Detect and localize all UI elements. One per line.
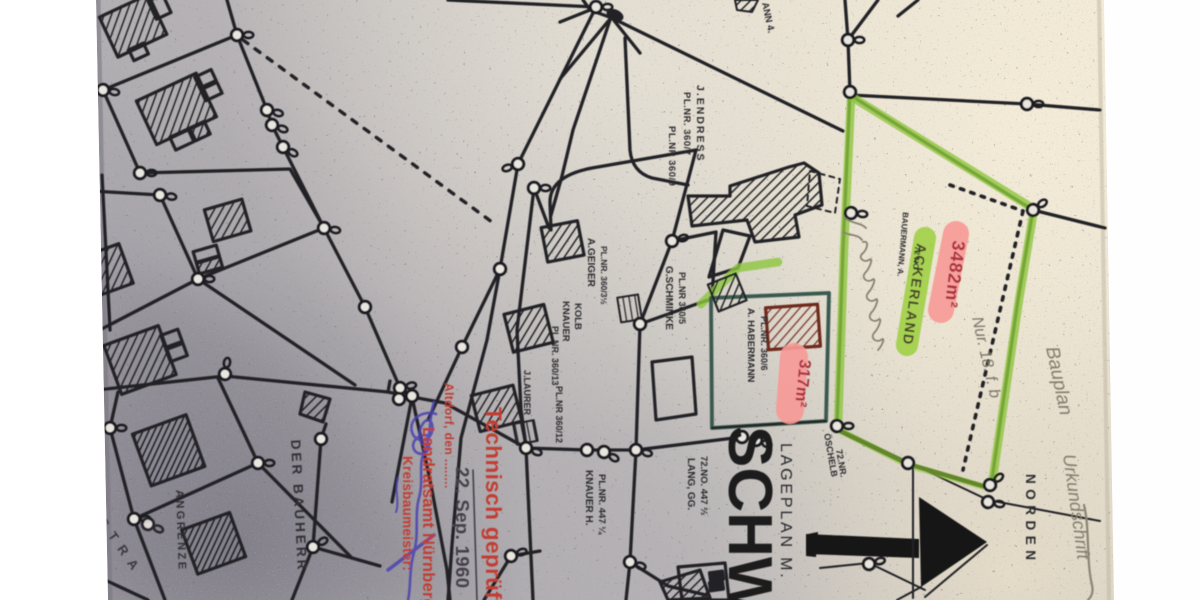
- svg-text:KNAUER H.: KNAUER H.: [583, 470, 594, 526]
- svg-text:Technisch geprüft: Technisch geprüft: [481, 407, 506, 600]
- svg-text:KOLB: KOLB: [572, 303, 583, 330]
- svg-text:PL.NR. 360/7: PL.NR. 360/7: [681, 92, 692, 156]
- svg-text:A.GEIGER: A.GEIGER: [585, 238, 596, 288]
- svg-text:PL.NR 360/12: PL.NR 360/12: [554, 386, 564, 443]
- svg-text:PL.NR. 360/6: PL.NR. 360/6: [759, 316, 769, 371]
- svg-text:LAGEPLAN M.: LAGEPLAN M.: [777, 443, 794, 581]
- svg-text:72.NO. 447 ⅔: 72.NO. 447 ⅔: [698, 456, 709, 515]
- svg-text:KNAUER: KNAUER: [560, 301, 571, 342]
- svg-text:PL.NR. 360/3½: PL.NR. 360/3½: [599, 246, 609, 305]
- svg-text:J.ENDRESS: J.ENDRESS: [694, 85, 706, 163]
- svg-text:PL.NR. 447 ¼: PL.NR. 447 ¼: [596, 474, 607, 535]
- svg-text:Kreisbaumeister:: Kreisbaumeister:: [400, 456, 415, 571]
- svg-text:A. HABERMANN: A. HABERMANN: [745, 308, 756, 383]
- svg-text:PL.NR 360/9: PL.NR 360/9: [666, 126, 677, 186]
- svg-text:PL.NR. 360/13: PL.NR. 360/13: [550, 326, 560, 386]
- svg-text:G.SCHMINKE: G.SCHMINKE: [663, 266, 674, 330]
- svg-text:PL.NR 360/5: PL.NR 360/5: [677, 272, 687, 324]
- svg-text:NORDEN: NORDEN: [1023, 474, 1038, 566]
- svg-text:J.LAURER: J.LAURER: [522, 370, 532, 416]
- svg-text:SCHWA: SCHWA: [715, 426, 784, 600]
- svg-text:22. Sep. 1960: 22. Sep. 1960: [452, 467, 473, 588]
- svg-text:LANG, GG.: LANG, GG.: [685, 458, 696, 510]
- svg-text:Landratsamt Nürnberg: Landratsamt Nürnberg: [419, 427, 437, 600]
